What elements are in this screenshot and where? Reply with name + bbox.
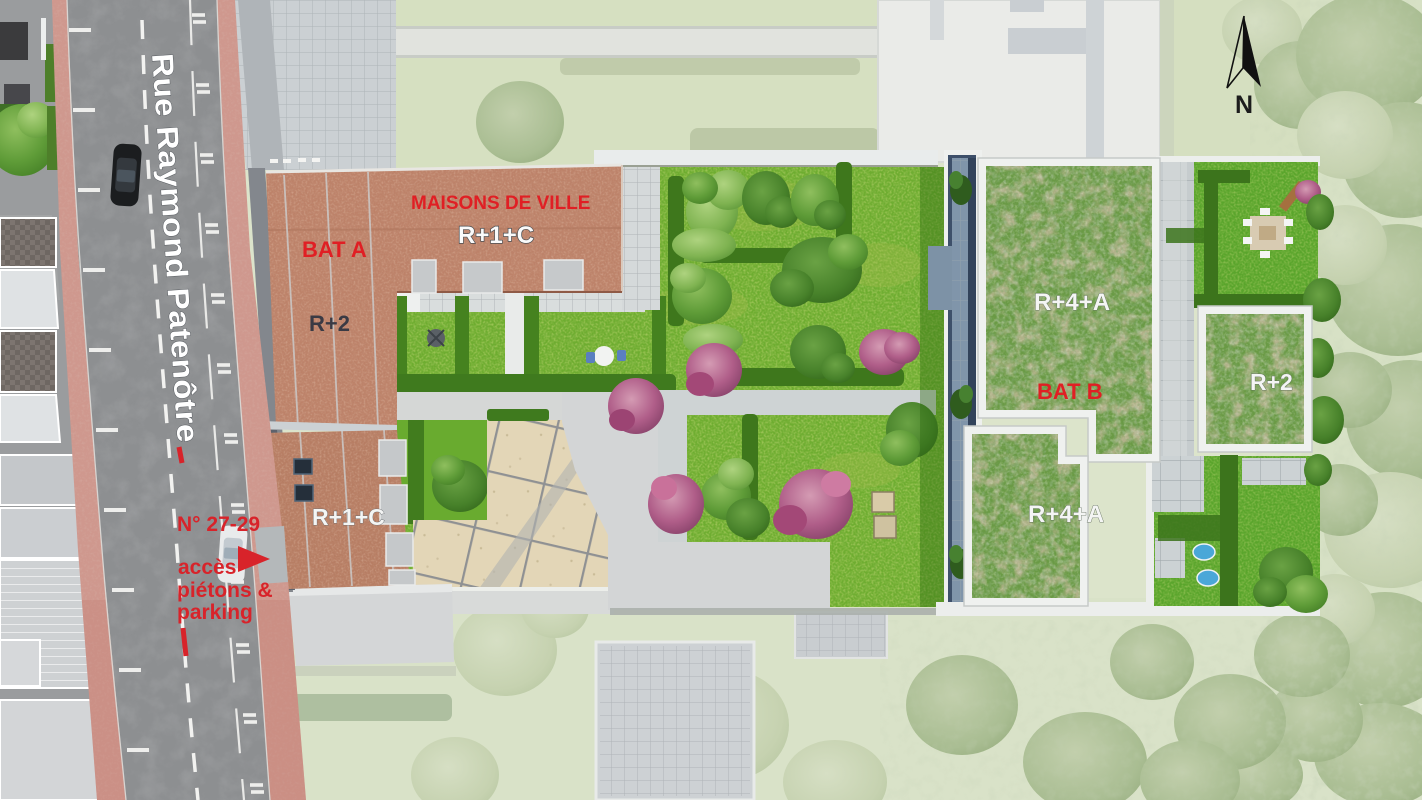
svg-text:R+4+A: R+4+A [1034,289,1110,316]
svg-text:R+1+C: R+1+C [312,504,385,530]
svg-text:N: N [1235,91,1253,119]
svg-text:parking: parking [177,601,253,624]
svg-text:R+1+C: R+1+C [458,222,534,249]
svg-text:R+2: R+2 [309,311,350,336]
svg-text:R+4+A: R+4+A [1028,501,1104,528]
svg-text:N° 27-29: N° 27-29 [177,513,260,536]
svg-text:R+2: R+2 [1250,369,1293,395]
svg-text:BAT A: BAT A [302,237,367,262]
svg-text:accès: accès [178,556,236,579]
svg-text:BAT B: BAT B [1037,379,1103,404]
svg-text:piétons &: piétons & [177,579,273,602]
svg-text:MAISONS DE VILLE: MAISONS DE VILLE [411,193,590,214]
